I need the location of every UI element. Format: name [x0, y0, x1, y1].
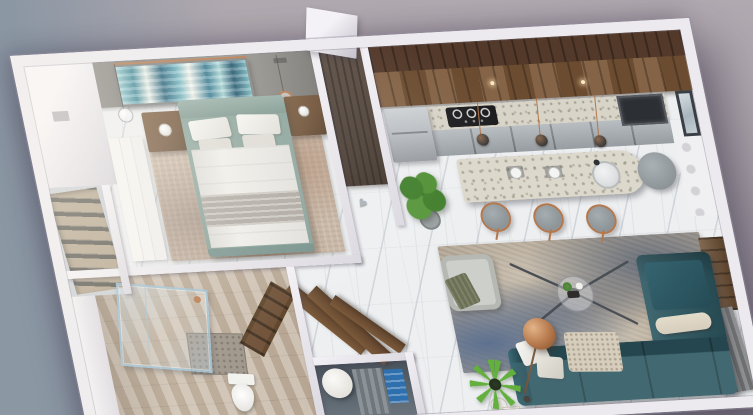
apartment-floorplan: ♥ [10, 18, 753, 415]
scene-background: ♥ [0, 0, 753, 415]
sunlight-overlay [10, 18, 753, 415]
